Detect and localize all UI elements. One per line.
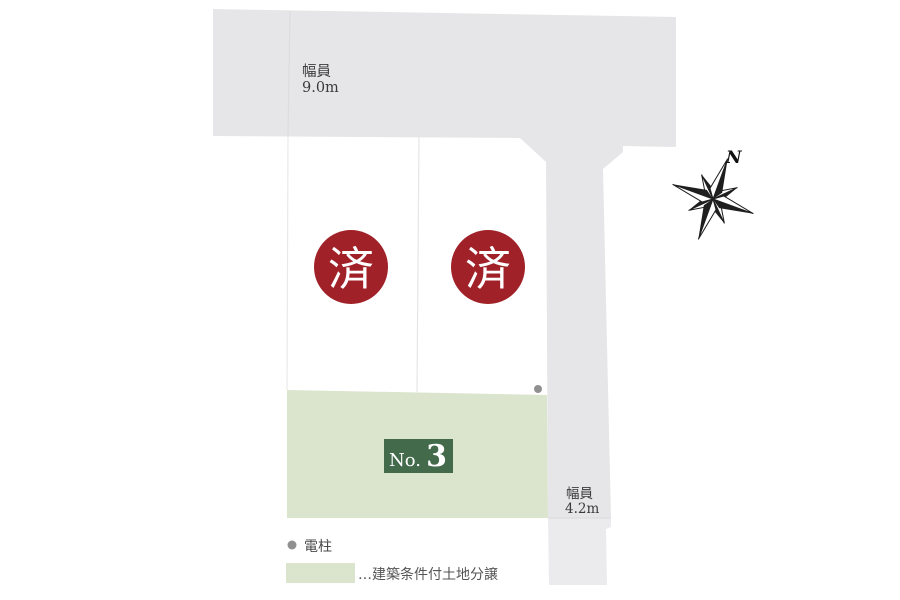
utility-pole-icon bbox=[534, 385, 542, 393]
compass-rose: N bbox=[658, 144, 768, 254]
site-plan-diagram: No. 3 済 済 幅員 9.0m 幅員 4.2m bbox=[0, 0, 900, 600]
compass-cardinal-points bbox=[658, 144, 768, 254]
compass-north-label: N bbox=[725, 148, 743, 168]
lot-1-sold-text: 済 bbox=[328, 242, 374, 296]
legend-green-swatch bbox=[286, 563, 355, 583]
legend-pole-icon bbox=[288, 541, 297, 550]
lot-boundary-middle bbox=[417, 135, 419, 392]
right-road-width-line1: 幅員 bbox=[566, 486, 593, 502]
right-road-width-line2: 4.2m bbox=[565, 501, 599, 517]
plot-map-canvas: No. 3 済 済 幅員 9.0m 幅員 4.2m bbox=[0, 0, 900, 600]
lot-3-number-digit: 3 bbox=[426, 439, 447, 474]
lot-2-sold-text: 済 bbox=[465, 242, 511, 296]
road-shape-lower bbox=[548, 518, 611, 585]
legend: 電柱 …建築条件付土地分譲 bbox=[286, 539, 498, 583]
lot-boundary-left bbox=[287, 136, 288, 390]
lot-1-sold-marker: 済 bbox=[314, 230, 388, 304]
lot-2-sold-marker: 済 bbox=[451, 230, 525, 304]
top-road-width-line1: 幅員 bbox=[302, 63, 331, 80]
legend-green-label: …建築条件付土地分譲 bbox=[358, 566, 498, 583]
top-road-width-line2: 9.0m bbox=[302, 80, 339, 96]
lot-3-number-prefix: No. bbox=[389, 450, 421, 471]
legend-pole-label: 電柱 bbox=[304, 539, 332, 555]
